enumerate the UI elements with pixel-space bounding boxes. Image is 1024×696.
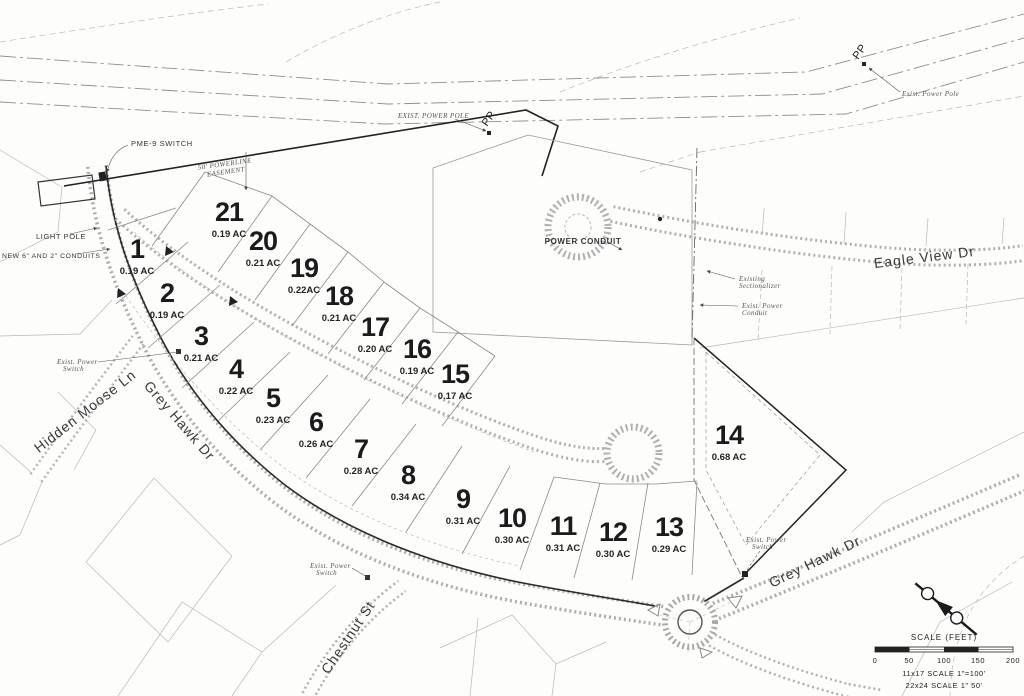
lot-label-19: 190.22AC xyxy=(288,253,320,296)
lot-number: 18 xyxy=(325,281,354,311)
power-pole-symbol xyxy=(862,62,866,66)
exist-power-switch-label-left: Exist. Power Switch xyxy=(56,358,98,373)
lot-acreage: 0.31 AC xyxy=(446,516,481,527)
lot-label-11: 110.31 AC xyxy=(546,511,581,554)
lot-label-8: 80.34 AC xyxy=(391,460,426,503)
lot-acreage: 0.29 AC xyxy=(652,544,687,555)
north-arrow-icon xyxy=(912,579,981,640)
lot-number: 6 xyxy=(309,407,324,437)
lot-acreage: 0.19 AC xyxy=(120,266,155,277)
lot-number: 12 xyxy=(599,517,627,547)
lot-label-2: 20.19 AC xyxy=(150,278,185,321)
lot-acreage: 0.19 AC xyxy=(150,310,185,321)
lot-label-14: 140.68 AC xyxy=(712,420,747,463)
street-label-chestnut: Chestnut St xyxy=(318,598,378,677)
switch-symbol xyxy=(742,571,748,577)
scale-tick-50: 50 xyxy=(904,656,913,665)
lot-number: 21 xyxy=(215,197,244,227)
lot-number: 10 xyxy=(498,503,526,533)
lot-acreage: 0.21 AC xyxy=(184,353,219,364)
exist-power-pole-right-label: Exist. Power Pole xyxy=(901,90,959,98)
lot-number: 8 xyxy=(401,460,416,490)
powerline-easement-label: 50' POWERLINE EASEMENT xyxy=(197,156,253,179)
lot-label-7: 70.28 AC xyxy=(344,434,379,477)
lot-label-20: 200.21 AC xyxy=(246,226,281,269)
road-chestnut xyxy=(308,586,402,696)
pp-label-top: PP xyxy=(480,109,499,129)
lot-label-12: 120.30 AC xyxy=(596,517,631,560)
lot-acreage: 0.68 AC xyxy=(712,452,747,463)
pme-switch-label: PME-9 SWITCH xyxy=(131,139,193,148)
lot-label-16: 160.19 AC xyxy=(400,334,435,377)
light-pole-label: LIGHT POLE xyxy=(36,232,86,241)
pp-label-right: PP xyxy=(851,42,870,62)
lot-acreage: 0.31 AC xyxy=(546,543,581,554)
exist-power-switch-label-bottom: Exist. Power Switch xyxy=(309,562,351,577)
street-label-hidden-moose: Hidden Moose Ln xyxy=(31,366,139,455)
switch-line2: Switch xyxy=(752,543,773,551)
lot-label-9: 90.31 AC xyxy=(446,484,481,527)
lot-acreage: 0.21 AC xyxy=(246,258,281,269)
lot-acreage: 0.19 AC xyxy=(212,229,247,240)
lot-acreage: 0.22AC xyxy=(288,285,320,296)
exist-power-switch-label-right: Exist. Power Switch xyxy=(745,536,787,551)
power-conduit-label: POWER CONDUIT xyxy=(545,237,622,246)
lot-acreage: 0.19 AC xyxy=(400,366,435,377)
lot-acreage: 0.21 AC xyxy=(322,313,357,324)
scale-block: SCALE (FEET) 0 50 100 150 200 11x17 SCAL… xyxy=(873,633,1020,690)
lot-number: 11 xyxy=(550,511,578,541)
lot-acreage: 0.28 AC xyxy=(344,466,379,477)
street-label-eagle-view: Eagle View Dr xyxy=(873,243,976,271)
sectionalizer-line2: Sectionalizer xyxy=(739,282,781,290)
existing-sectionalizer-label: Existing Sectionalizer xyxy=(738,275,781,290)
road-southeast-arm xyxy=(712,640,880,696)
lot-acreage: 0.26 AC xyxy=(299,439,334,450)
lot-number: 9 xyxy=(456,484,471,514)
plat-map-sheet: 10.19 AC 20.19 AC 30.21 AC 40.22 AC 50.2… xyxy=(0,0,1024,696)
lot-number: 15 xyxy=(441,359,470,389)
lot-number: 17 xyxy=(361,312,389,342)
lot-number: 1 xyxy=(130,234,145,264)
scale-tick-0: 0 xyxy=(873,656,878,665)
lot-number: 19 xyxy=(290,253,319,283)
lot-label-5: 50.23 AC xyxy=(256,383,291,426)
lot-label-21: 210.19 AC xyxy=(212,197,247,240)
switch-symbol xyxy=(365,575,370,580)
scale-bar xyxy=(875,647,1013,652)
lot-label-4: 40.22 AC xyxy=(219,354,254,397)
switch-symbol xyxy=(176,349,181,354)
scale-tick-100: 100 xyxy=(937,656,951,665)
scale-tick-150: 150 xyxy=(971,656,985,665)
exist-power-conduit-label: Exist. Power Conduit xyxy=(741,302,783,317)
switch-line2: Switch xyxy=(316,569,337,577)
lot-number: 4 xyxy=(229,354,244,384)
scale-title: SCALE (FEET) xyxy=(911,633,977,642)
annotation-labels: PME-9 SWITCH LIGHT POLE NEW 6" AND 2" CO… xyxy=(2,42,959,577)
lot-acreage: 0.17 AC xyxy=(438,391,473,402)
scale-note-1: 11x17 SCALE 1"=100' xyxy=(902,669,985,678)
power-pole-symbol xyxy=(487,131,491,135)
exist-power-pole-top-label: EXIST. POWER POLE xyxy=(397,112,469,120)
power-conduit-line2: Conduit xyxy=(742,309,768,317)
pole-dot-symbol xyxy=(658,217,662,221)
lot-acreage: 0.20 AC xyxy=(358,344,393,355)
lot-label-17: 170.20 AC xyxy=(358,312,393,355)
lot-acreage: 0.23 AC xyxy=(256,415,291,426)
lot-number: 5 xyxy=(266,383,281,413)
lot-acreage: 0.22 AC xyxy=(219,386,254,397)
utility-symbols xyxy=(117,62,866,580)
lot-acreage: 0.30 AC xyxy=(495,535,530,546)
lot-label-18: 180.21 AC xyxy=(322,281,357,324)
lot-number: 3 xyxy=(194,321,209,351)
switch-line2: Switch xyxy=(63,365,84,373)
lot-label-13: 130.29 AC xyxy=(652,512,687,555)
plat-map-canvas: 10.19 AC 20.19 AC 30.21 AC 40.22 AC 50.2… xyxy=(0,0,1024,696)
lot-number: 14 xyxy=(715,420,744,450)
lot-number: 16 xyxy=(403,334,432,364)
lot-number: 13 xyxy=(655,512,684,542)
lot-label-3: 30.21 AC xyxy=(184,321,219,364)
lot-number: 2 xyxy=(160,278,174,308)
lot-acreage: 0.34 AC xyxy=(391,492,426,503)
scale-tick-200: 200 xyxy=(1006,656,1020,665)
lot-label-15: 150.17 AC xyxy=(438,359,473,402)
lot-label-10: 100.30 AC xyxy=(495,503,530,546)
lot-label-6: 60.26 AC xyxy=(299,407,334,450)
lot-number: 7 xyxy=(354,434,368,464)
lot-acreage: 0.30 AC xyxy=(596,549,631,560)
lot-number: 20 xyxy=(249,226,277,256)
scale-note-2: 22x24 SCALE 1" 50' xyxy=(906,681,983,690)
new-conduits-label: NEW 6" AND 2" CONDUITS xyxy=(2,253,100,260)
